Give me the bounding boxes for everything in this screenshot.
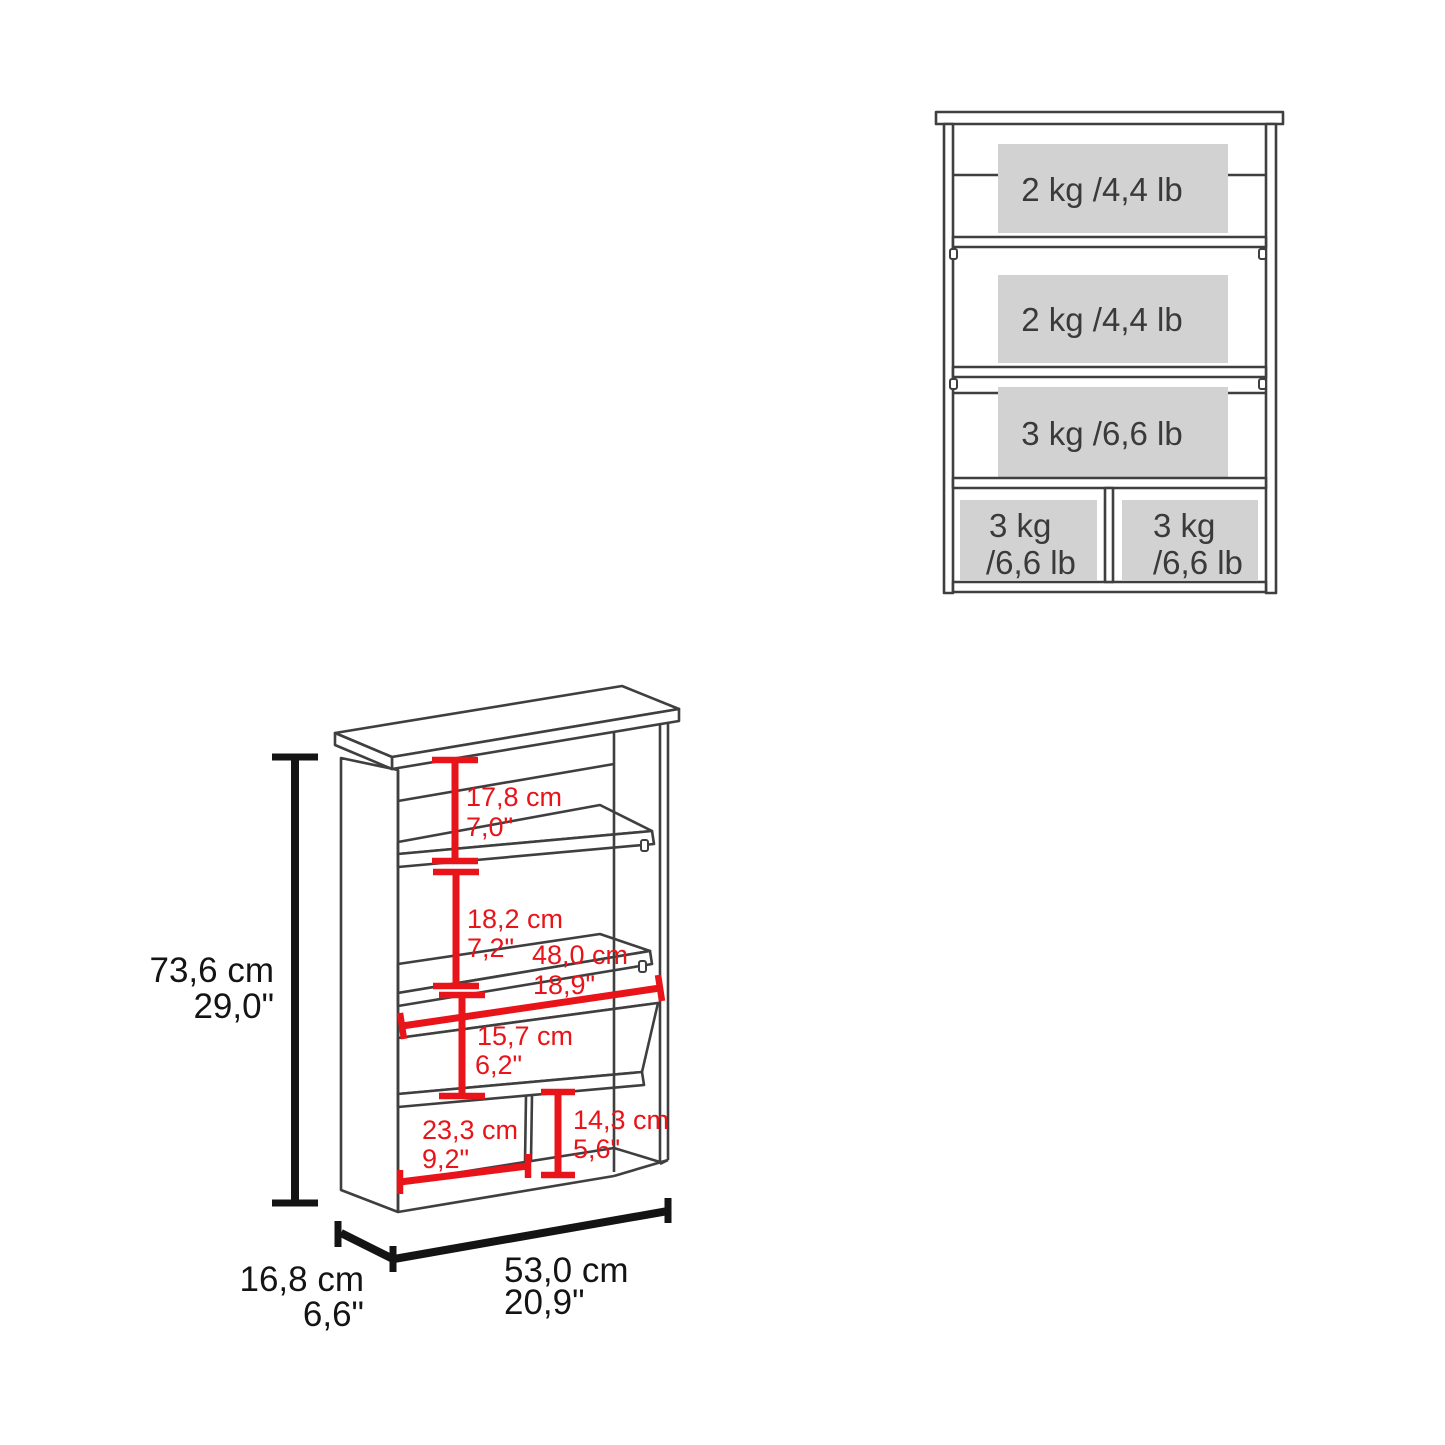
bottom-divider-right-edge: [531, 1095, 532, 1161]
shelf-pin-icon: [950, 379, 957, 389]
shelf-pin-icon: [639, 961, 646, 972]
top-shelf-space-cm-label: 17,8 cm: [466, 782, 562, 812]
center-divider: [1105, 488, 1113, 582]
floor-right-edge: [614, 1148, 660, 1162]
left-compartment-capacity-line1: 3 kg: [989, 507, 1051, 544]
right-compartment-capacity-line1: 3 kg: [1153, 507, 1215, 544]
middle-shelf-space-cm-label: 18,2 cm: [467, 904, 563, 934]
shelf-3: [953, 478, 1266, 488]
front-view-figure: 2 kg /4,4 lb 2 kg /4,4 lb 3 kg /6,6 lb 3…: [936, 112, 1283, 593]
right-compartment-height-in-label: 5,6": [573, 1134, 620, 1164]
shelf-pin-icon: [1259, 379, 1266, 389]
shelf-pin-icon: [1259, 249, 1266, 259]
shelf-pin-icon: [641, 840, 648, 851]
shelf3-capacity-label: 3 kg /6,6 lb: [1021, 415, 1182, 452]
bottom-divider-left-edge: [525, 1096, 526, 1162]
top-board: [936, 112, 1283, 124]
dim-right-compartment-height: [541, 1092, 575, 1175]
bottom-board: [953, 582, 1266, 592]
left-compartment-width-in-label: 9,2": [422, 1144, 469, 1174]
depth-in-label: 6,6": [303, 1295, 364, 1334]
shelf-2: [953, 367, 1266, 377]
shelf-width-cm-label: 48,0 cm: [532, 940, 628, 970]
dim-overall-height: [272, 757, 318, 1203]
shelf-1: [953, 237, 1266, 247]
left-side-panel: [944, 124, 953, 593]
right-compartment-height-cm-label: 14,3 cm: [573, 1105, 669, 1135]
diagram-svg: 2 kg /4,4 lb 2 kg /4,4 lb 3 kg /6,6 lb 3…: [0, 0, 1445, 1445]
overall-height-in-label: 29,0": [193, 987, 274, 1026]
shelf2-capacity-label: 2 kg /4,4 lb: [1021, 301, 1182, 338]
cabinet-bottom-right-edge: [614, 1160, 668, 1176]
dim-depth: [338, 1221, 393, 1259]
left-side-panel-3d: [341, 758, 398, 1212]
top-shelf-space-in-label: 7,0": [466, 812, 513, 842]
middle-shelf-space-in-label: 7,2": [467, 933, 514, 963]
depth-cm-label: 16,8 cm: [240, 1260, 365, 1299]
lower-shelf-space-cm-label: 15,7 cm: [477, 1021, 573, 1051]
left-compartment-width-cm-label: 23,3 cm: [422, 1115, 518, 1145]
overall-width-in-label: 20,9": [504, 1283, 585, 1322]
dimension-view-figure: 17,8 cm 7,0" 18,2 cm 7,2" 48,0 cm 18,9" …: [150, 686, 680, 1334]
overall-height-cm-label: 73,6 cm: [150, 951, 275, 990]
shelf-width-in-label: 18,9": [533, 970, 595, 1000]
left-compartment-capacity-line2: /6,6 lb: [986, 544, 1076, 581]
lower-shelf-space-in-label: 6,2": [475, 1050, 522, 1080]
product-dimension-diagram: 2 kg /4,4 lb 2 kg /4,4 lb 3 kg /6,6 lb 3…: [0, 0, 1445, 1445]
shelf-pin-icon: [950, 249, 957, 259]
shelf1-capacity-label: 2 kg /4,4 lb: [1021, 171, 1182, 208]
right-compartment-capacity-line2: /6,6 lb: [1153, 544, 1243, 581]
right-side-panel: [1266, 124, 1276, 593]
